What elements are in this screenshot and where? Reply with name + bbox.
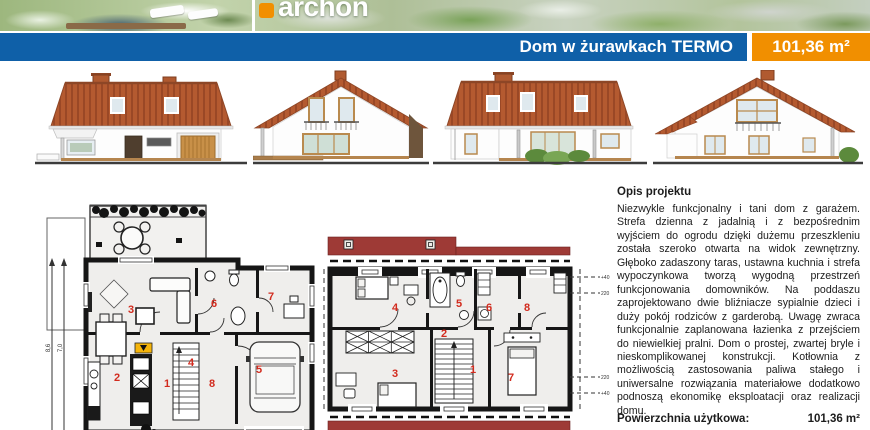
room-number: 2 — [441, 328, 447, 340]
archon-logo-square-icon — [259, 3, 274, 18]
usable-area-value: 101,36 m² — [808, 413, 860, 425]
room-number: 3 — [128, 304, 134, 316]
project-card-page: archon Dom w żurawkach TERMO 101,36 m² — [0, 0, 870, 430]
level-mark: +40 — [601, 275, 610, 281]
wardrobe-hatched — [346, 331, 414, 353]
project-title-banner: Dom w żurawkach TERMO — [0, 33, 747, 61]
room-number: 5 — [456, 298, 462, 310]
room-number: 8 — [524, 302, 530, 314]
elevation-front-drawing — [35, 70, 247, 166]
area-badge: 101,36 m² — [752, 33, 870, 61]
header-photo-strip: archon — [0, 0, 870, 31]
photo-separator — [252, 0, 255, 31]
rear-elevation-shapes — [433, 72, 647, 165]
room-number: 1 — [470, 364, 476, 376]
elevation-side-right-drawing — [653, 70, 863, 166]
room-number: 6 — [486, 302, 492, 314]
ground-floor-shapes: 8,6 7,0 — [46, 205, 316, 430]
room-number: 8 — [209, 378, 215, 390]
usable-area-label: Powierzchnia użytkowa: — [617, 413, 749, 425]
ground-floor-plan: 8,6 7,0 — [38, 196, 324, 430]
room-number: 5 — [256, 364, 262, 376]
front-elevation-shapes — [35, 73, 247, 163]
upper-floor-plan: +40 220 220 +40 1 2 3 4 5 6 7 8 — [322, 227, 612, 430]
room-number: 1 — [164, 378, 170, 390]
dimension-label: 8,6 — [46, 343, 52, 352]
wooden-deck — [66, 23, 186, 29]
archon-logo: archon — [259, 0, 368, 21]
side-elevation-shapes — [253, 71, 429, 163]
description-heading: Opis projektu — [617, 186, 860, 198]
upper-floor-shapes: +40 220 220 +40 1 2 3 4 5 6 7 8 — [324, 237, 610, 430]
level-mark: +40 — [601, 391, 610, 397]
description-body: Niezwykle funkcjonalny i tani dom z gara… — [617, 203, 860, 418]
elevation-side-left-drawing — [253, 70, 429, 166]
side-elevation-shapes — [653, 70, 863, 163]
room-number: 6 — [211, 298, 217, 310]
project-description: Opis projektu Niezwykle funkcjonalny i t… — [617, 186, 860, 418]
usable-area-row: Powierzchnia użytkowa: 101,36 m² — [617, 413, 860, 425]
archon-logo-text: archon — [278, 0, 368, 21]
room-number: 2 — [114, 372, 120, 384]
room-number: 4 — [188, 357, 195, 369]
dimension-label: 7,0 — [58, 343, 64, 352]
elevation-rear-drawing — [433, 70, 647, 166]
level-mark: 220 — [601, 291, 610, 297]
level-mark: 220 — [601, 375, 610, 381]
room-number: 4 — [392, 302, 399, 314]
level-mark-lines — [570, 277, 600, 393]
room-number: 7 — [508, 372, 514, 384]
room-number: 3 — [392, 368, 398, 380]
room-number: 7 — [268, 291, 274, 303]
